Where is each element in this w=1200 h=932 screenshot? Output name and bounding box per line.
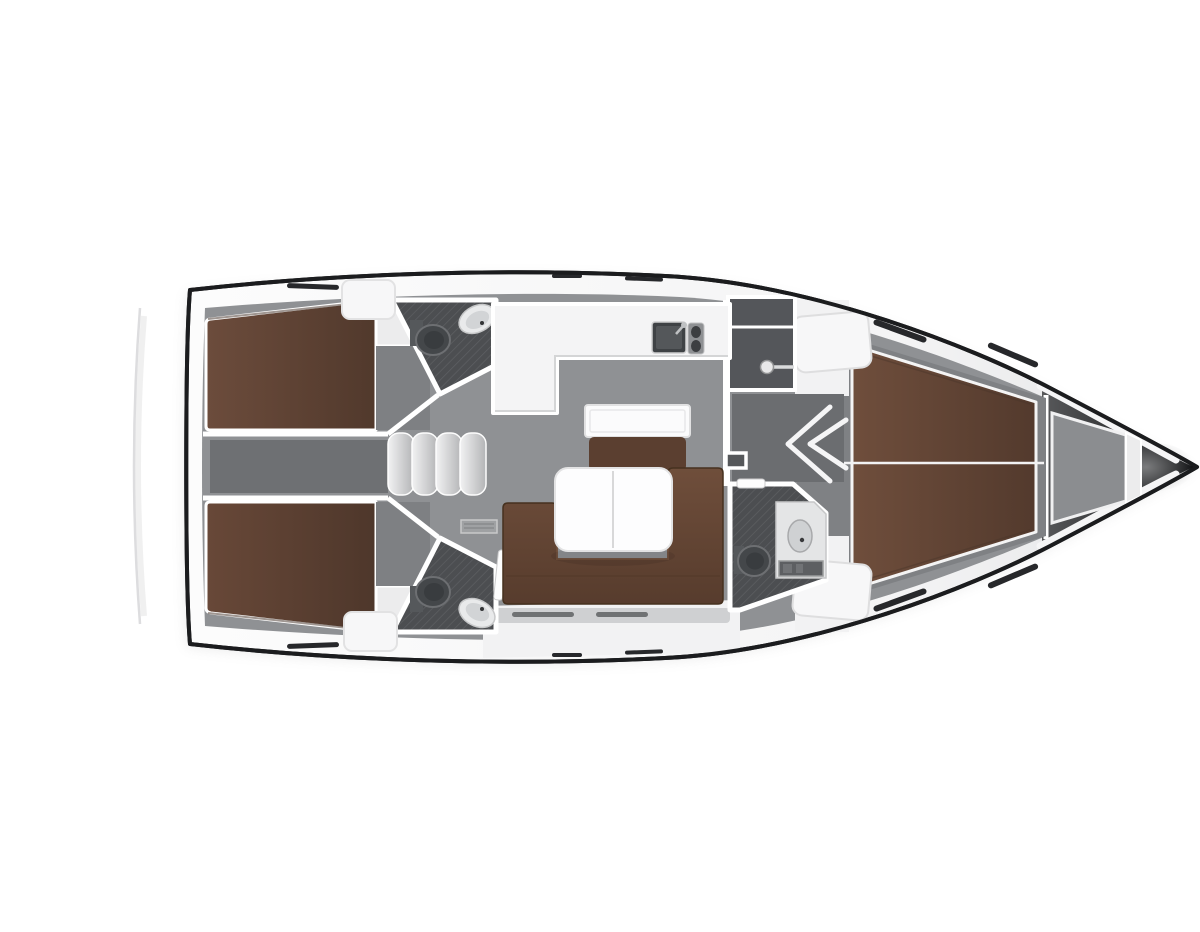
bedside-shelf-port	[792, 311, 873, 373]
stove-burner-1	[691, 326, 701, 338]
shower-sink	[788, 520, 812, 552]
deck-window-7	[552, 653, 582, 657]
aft-cabin-starboard	[206, 502, 430, 632]
chart-table-seat	[589, 437, 686, 471]
shower-drain	[800, 538, 804, 542]
corridor-hatch	[726, 453, 746, 468]
chart-table	[585, 405, 690, 471]
deck-hatch-port	[342, 280, 395, 319]
aft-cabin-port	[206, 300, 430, 430]
wardrobe	[728, 297, 795, 390]
forward-head-door	[737, 479, 765, 488]
clothes-rod-end	[761, 361, 774, 374]
stove-burner-2	[691, 340, 701, 352]
transom-faint-arc	[138, 316, 144, 616]
deck-hatch-starboard	[344, 612, 397, 651]
companionway-steps	[388, 433, 486, 495]
floor-plan-canvas	[40, 16, 1200, 916]
forward-corridor	[726, 394, 846, 482]
vent-grille	[461, 520, 497, 533]
yacht-floor-plan	[40, 16, 1200, 916]
bow	[1040, 386, 1194, 546]
saloon-side-deck	[483, 600, 740, 658]
